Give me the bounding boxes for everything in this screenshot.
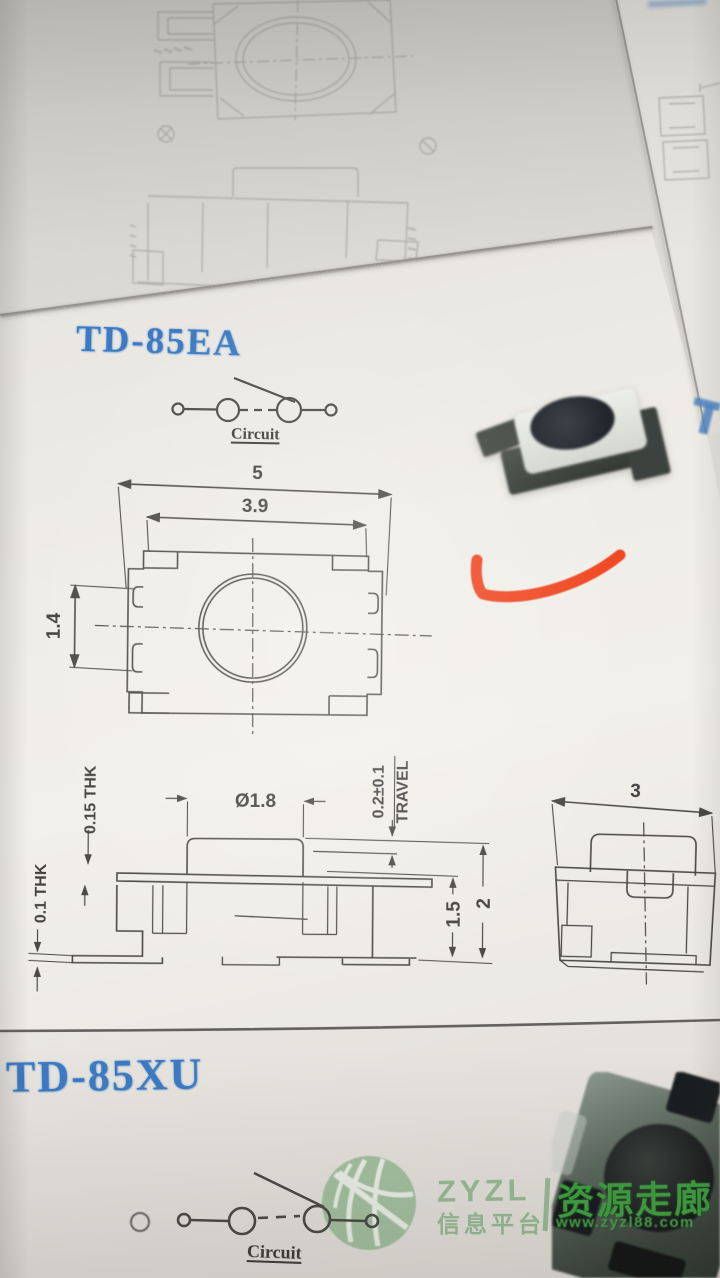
dim-depth: 3	[630, 781, 641, 802]
faint-right-sheet-drawing	[645, 60, 720, 195]
front-view-drawing: 0.15 THK 0.1 THK Ø1.8 0.2±0.1 TRAVEL 1.5…	[14, 733, 516, 1011]
model-title-td85xu: TD-85XU	[6, 1048, 204, 1102]
dim-cover-thickness: 0.15 THK	[82, 765, 99, 834]
circuit-label: Circuit	[231, 426, 280, 445]
dim-travel-word: TRAVEL	[394, 760, 411, 823]
datasheet-photo: TD-85EA Circuit	[0, 0, 720, 1278]
watermark-site-url: www.zyzl88.com	[556, 1214, 695, 1231]
stray-ink-ring	[130, 1212, 150, 1232]
end-view-drawing: 3	[535, 770, 720, 1003]
watermark-brand-cn: 信息平台	[437, 1205, 545, 1239]
dim-body-width: 3.9	[242, 496, 269, 517]
dim-terminal-height: 1.4	[44, 612, 65, 639]
dim-stem-diameter: Ø1.8	[235, 791, 276, 812]
circuit-label-bottom: Circuit	[247, 1241, 302, 1264]
dim-height-body: 1.5	[444, 901, 465, 928]
circuit-symbol-icon	[168, 370, 343, 425]
switch-photo-top	[478, 395, 678, 507]
model-title-td85ea: TD-85EA	[75, 318, 242, 366]
dim-overall-width: 5	[252, 463, 263, 484]
dim-height-total: 2	[474, 898, 495, 909]
red-check-mark-icon	[455, 528, 635, 620]
top-view-drawing: 5 3.9 1.4	[38, 460, 451, 764]
section-divider-line	[0, 1010, 720, 1050]
dim-terminal-thickness: 0.1 THK	[33, 863, 50, 923]
circuit-symbol-bottom-icon	[166, 1166, 386, 1244]
dim-travel-value: 0.2±0.1	[370, 765, 387, 818]
